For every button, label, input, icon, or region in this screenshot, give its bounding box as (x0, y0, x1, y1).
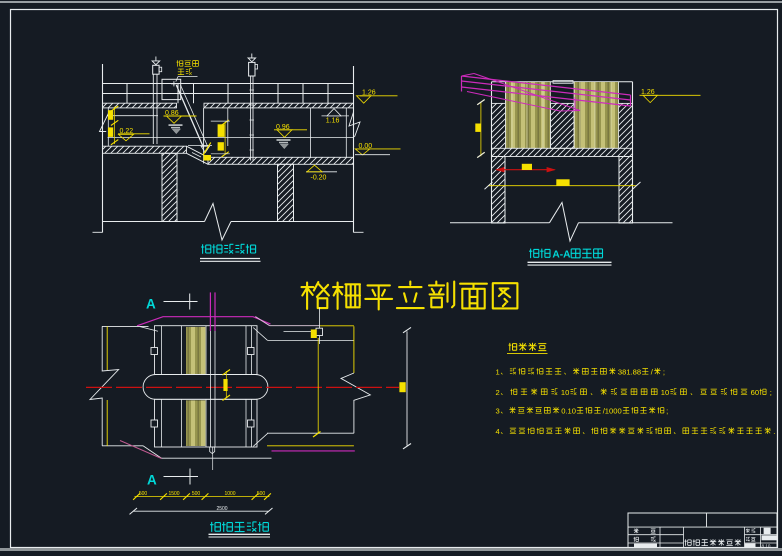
svg-text:-0.20: -0.20 (311, 174, 327, 181)
svg-text:1: 1 (496, 368, 500, 377)
svg-text:4: 4 (496, 427, 500, 436)
svg-text:500: 500 (139, 491, 148, 497)
svg-text:381.88: 381.88 (618, 368, 641, 377)
svg-text:1.16: 1.16 (326, 118, 340, 125)
svg-text:;: ; (666, 407, 668, 416)
svg-text:500: 500 (257, 491, 266, 497)
svg-text:8.10: 8.10 (762, 543, 771, 548)
svg-text:;: ; (663, 368, 665, 377)
svg-text:/1000: /1000 (603, 407, 622, 416)
svg-text:2: 2 (496, 388, 500, 397)
svg-text:A-A: A-A (552, 250, 571, 261)
svg-text:60: 60 (751, 388, 759, 397)
svg-text:2500: 2500 (216, 506, 227, 512)
svg-text:;: ; (770, 388, 772, 397)
svg-text:.: . (773, 427, 775, 436)
svg-text:0.10: 0.10 (561, 407, 576, 416)
svg-text:1500: 1500 (168, 491, 179, 497)
svg-text:A: A (146, 297, 156, 312)
svg-text:10: 10 (561, 388, 569, 397)
svg-text:1000: 1000 (224, 491, 235, 497)
svg-text:3: 3 (496, 407, 500, 416)
svg-text:10: 10 (661, 388, 669, 397)
svg-text:A: A (147, 473, 157, 488)
svg-text:500: 500 (192, 491, 201, 497)
